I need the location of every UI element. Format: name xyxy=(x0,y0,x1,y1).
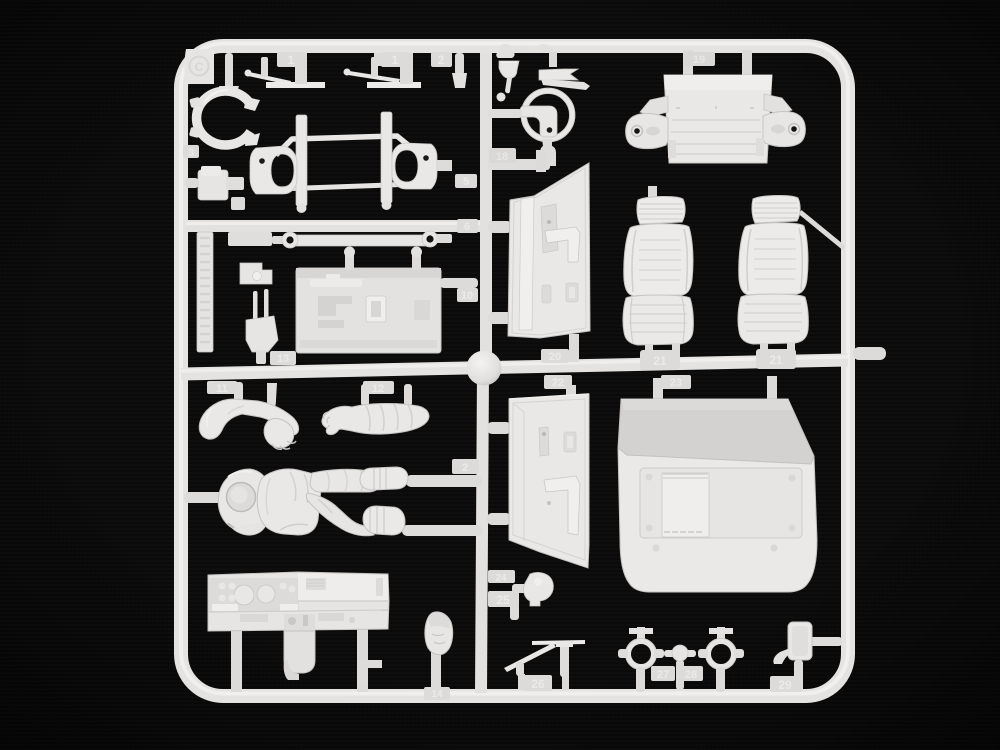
svg-text:6: 6 xyxy=(464,221,470,233)
svg-text:21: 21 xyxy=(769,353,783,367)
svg-text:29: 29 xyxy=(778,678,792,692)
svg-text:26: 26 xyxy=(531,677,545,691)
svg-text:2: 2 xyxy=(438,53,445,67)
svg-text:23: 23 xyxy=(670,377,682,389)
svg-text:5: 5 xyxy=(463,176,469,188)
svg-text:21: 21 xyxy=(653,354,667,368)
svg-text:2: 2 xyxy=(462,462,468,474)
svg-text:22: 22 xyxy=(552,377,564,389)
svg-text:20: 20 xyxy=(549,351,561,363)
svg-text:14: 14 xyxy=(431,689,443,700)
svg-text:10: 10 xyxy=(461,290,473,302)
svg-text:12: 12 xyxy=(372,383,384,395)
svg-text:1: 1 xyxy=(392,53,399,67)
svg-text:25: 25 xyxy=(496,593,510,607)
svg-text:27: 27 xyxy=(657,669,669,681)
svg-text:19: 19 xyxy=(693,54,705,66)
svg-text:1: 1 xyxy=(288,53,295,67)
svg-text:24: 24 xyxy=(495,573,507,584)
svg-text:18: 18 xyxy=(496,151,508,163)
svg-text:28: 28 xyxy=(685,669,697,681)
svg-text:C: C xyxy=(195,60,204,74)
svg-text:3: 3 xyxy=(188,147,194,159)
svg-text:13: 13 xyxy=(277,353,289,365)
svg-text:11: 11 xyxy=(216,383,228,395)
